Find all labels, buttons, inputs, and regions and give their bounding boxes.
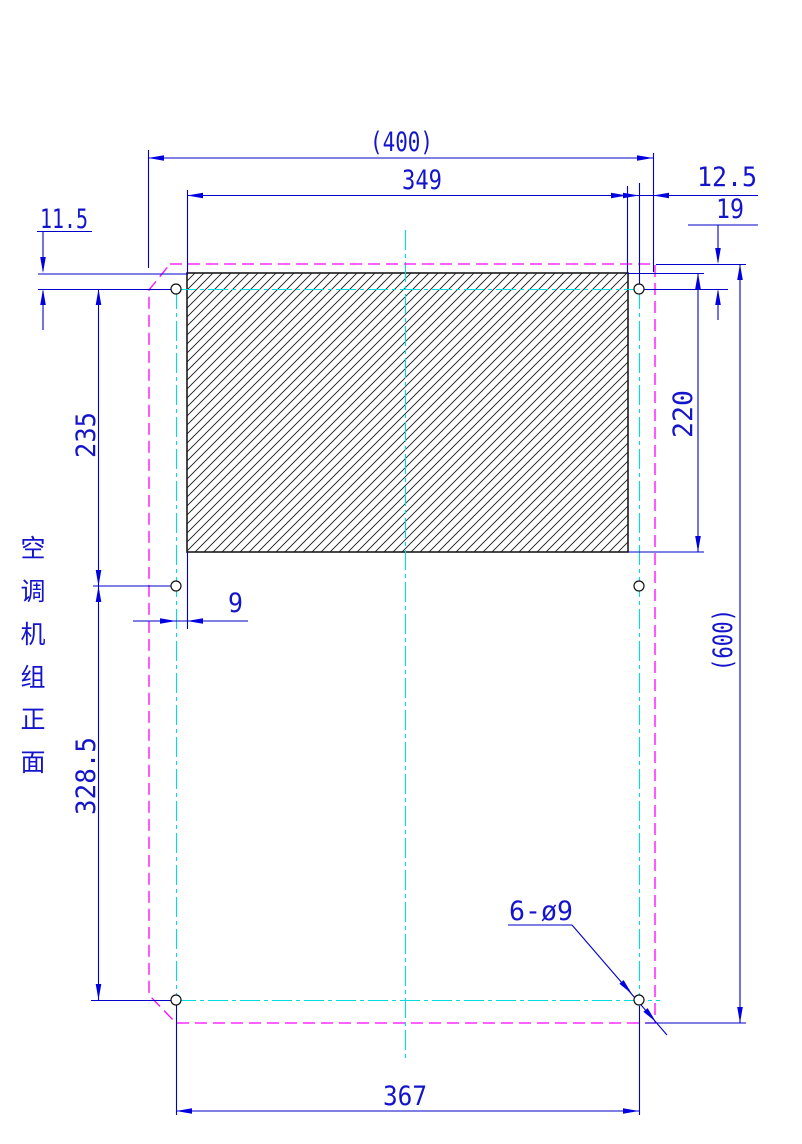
title-char: 调 xyxy=(20,577,45,606)
dim-hole-to-right-edge: 12.5 xyxy=(697,162,757,193)
dim-opening-top-to-hole: 11.5 xyxy=(40,204,88,235)
dim-hole-to-opening-left: 9 xyxy=(228,588,243,619)
dim-bottom-hole-span: 367 xyxy=(383,1081,427,1112)
mounting-hole xyxy=(634,581,644,591)
drawing-title-vertical: 空 调 机 组 正 面 xyxy=(20,534,45,777)
dim-overall-width: (400) xyxy=(370,127,433,158)
mounting-hole xyxy=(171,995,181,1005)
mounting-hole xyxy=(171,581,181,591)
mounting-hole xyxy=(171,284,181,294)
dim-overall-height: (600) xyxy=(708,609,739,671)
dim-hole-row2-to-row3: 328.5 xyxy=(71,737,102,815)
cad-drawing: (400) 349 12.5 19 11.5 9 235 328.5 220 (… xyxy=(0,0,802,1144)
title-char: 组 xyxy=(20,663,45,692)
dim-opening-height: 220 xyxy=(668,390,699,438)
mounting-hole xyxy=(634,995,644,1005)
title-char: 正 xyxy=(20,705,45,734)
dim-top-edge-to-hole: 19 xyxy=(716,194,744,225)
hole-callout: 6-ø9 xyxy=(509,896,573,927)
mounting-hole xyxy=(634,284,644,294)
title-char: 空 xyxy=(20,534,45,563)
title-char: 机 xyxy=(20,620,45,649)
cad-sheet: (400) 349 12.5 19 11.5 9 235 328.5 220 (… xyxy=(0,0,802,1144)
dim-hole-row1-to-row2: 235 xyxy=(71,412,102,458)
ventilation-opening-hatch xyxy=(187,273,628,552)
dim-opening-width: 349 xyxy=(402,165,442,196)
title-char: 面 xyxy=(20,748,45,777)
